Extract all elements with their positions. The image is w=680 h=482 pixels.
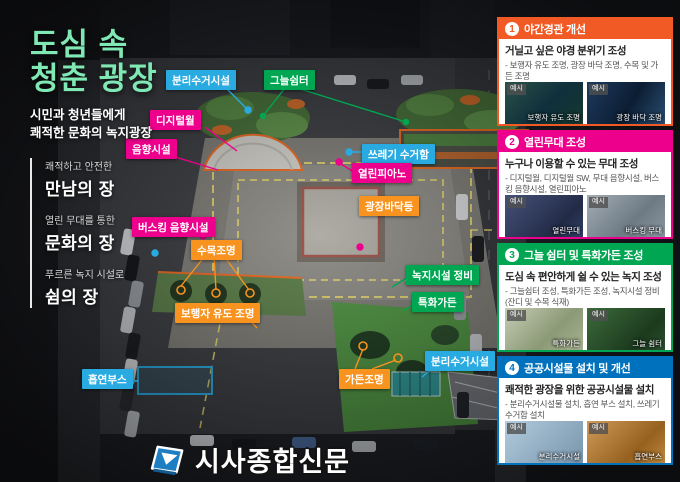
section-number-badge: 1 <box>505 22 519 36</box>
section-night-landscape: 1 야간경관 개선 거닐고 싶은 야경 분위기 조성 - 보행자 유도 조명, … <box>497 17 673 126</box>
map-label-green-maintenance: 녹지시설 정비 <box>406 265 479 285</box>
plaza-infographic: 도심 속 청춘 광장 시민과 청년들에게 쾌적한 문화의 녹지광장 쾌적하고 안… <box>0 0 680 482</box>
photo-caption: 분리수거시설 <box>539 451 580 462</box>
map-label-smoking-booth: 흡연부스 <box>82 369 133 389</box>
photo-caption: 열린무대 <box>552 225 580 236</box>
section-desc: - 그늘쉼터 조성, 특화가든 조성, 녹지시설 정비 (잔디 및 수목 식재) <box>505 286 665 308</box>
title-line-1: 도심 속 <box>30 27 128 62</box>
section-number-badge: 3 <box>505 248 519 262</box>
photo-tag: 예시 <box>507 423 526 434</box>
title-block: 도심 속 청춘 광장 시민과 청년들에게 쾌적한 문화의 녹지광장 쾌적하고 안… <box>30 28 205 308</box>
example-photo: 예시 열린무대 <box>505 195 583 238</box>
photo-caption: 흡연부스 <box>634 451 662 462</box>
example-photo: 예시 그늘 쉼터 <box>587 308 665 351</box>
section-title: 도심 속 편안하게 쉴 수 있는 녹지 조성 <box>505 269 665 284</box>
section-header: 4 공공시설물 설치 및 개선 <box>499 358 671 378</box>
photo-tag: 예시 <box>589 197 608 208</box>
section-title: 누구나 이용할 수 있는 무대 조성 <box>505 156 665 171</box>
section-desc: - 디지털월, 디지털월 SW, 무대 음향시설, 버스킹 음향시설, 열린피아… <box>505 173 665 195</box>
publisher-logo: 시사종합신문 <box>0 440 500 479</box>
value-item-meeting: 쾌적하고 안전한 만남의 장 <box>45 158 205 200</box>
photo-caption: 그늘 쉼터 <box>632 338 662 349</box>
page-subtitle: 시민과 청년들에게 쾌적한 문화의 녹지광장 <box>30 107 205 142</box>
photo-caption: 버스킹 무대 <box>625 225 662 236</box>
photo-caption: 광장 바닥 조명 <box>616 112 662 123</box>
section-number-badge: 4 <box>505 361 519 375</box>
section-open-stage: 2 열린무대 조성 누구나 이용할 수 있는 무대 조성 - 디지털월, 디지털… <box>497 130 673 239</box>
publisher-name: 시사종합신문 <box>195 440 350 479</box>
title-line-2: 청춘 광장 <box>30 61 158 96</box>
page-title: 도심 속 청춘 광장 <box>30 28 205 96</box>
example-photo: 예시 광장 바닥 조명 <box>587 82 665 125</box>
photo-tag: 예시 <box>507 84 526 95</box>
section-title: 거닐고 싶은 야경 분위기 조성 <box>505 43 665 58</box>
value-list: 쾌적하고 안전한 만남의 장 열린 무대를 통한 문화의 장 푸르른 녹지 시설… <box>30 158 205 308</box>
section-header: 1 야간경관 개선 <box>499 19 671 39</box>
section-header: 2 열린무대 조성 <box>499 132 671 152</box>
example-photo: 예시 흡연부스 <box>587 421 665 464</box>
section-header: 3 그늘 쉼터 및 특화가든 조성 <box>499 245 671 265</box>
example-photo: 예시 분리수거시설 <box>505 421 583 464</box>
map-label-open-piano: 열린피아노 <box>352 163 412 183</box>
improvement-sidebar: 1 야간경관 개선 거닐고 싶은 야경 분위기 조성 - 보행자 유도 조명, … <box>497 17 673 465</box>
map-label-special-garden: 특화가든 <box>412 292 463 312</box>
value-item-culture: 열린 무대를 통한 문화의 장 <box>45 212 205 254</box>
example-photo: 예시 버스킹 무대 <box>587 195 665 238</box>
map-label-garden-light: 가든조명 <box>339 369 390 389</box>
photo-tag: 예시 <box>589 423 608 434</box>
photo-tag: 예시 <box>589 84 608 95</box>
section-number-badge: 2 <box>505 135 519 149</box>
example-photo: 예시 보행자 유도 조명 <box>505 82 583 125</box>
example-photo: 예시 특화가든 <box>505 308 583 351</box>
section-desc: - 분리수거시설물 설치, 흡연 부스 설치, 쓰레기 수거함 설치 <box>505 399 665 421</box>
map-label-plaza-floor-light: 광장바닥등 <box>359 196 419 216</box>
map-label-shade-shelter: 그늘쉼터 <box>264 70 315 90</box>
photo-tag: 예시 <box>589 310 608 321</box>
map-label-waste-separation-right: 분리수거시설 <box>425 351 495 371</box>
section-public-facilities: 4 공공시설물 설치 및 개선 쾌적한 광장을 위한 공공시설물 설치 - 분리… <box>497 356 673 465</box>
section-shade-garden: 3 그늘 쉼터 및 특화가든 조성 도심 속 편안하게 쉴 수 있는 녹지 조성… <box>497 243 673 352</box>
section-desc: - 보행자 유도 조명, 광장 바닥 조명, 수목 및 가든 조명 <box>505 60 665 82</box>
section-title: 쾌적한 광장을 위한 공공시설물 설치 <box>505 382 665 397</box>
photo-caption: 특화가든 <box>552 338 580 349</box>
photo-tag: 예시 <box>507 310 526 321</box>
value-item-rest: 푸르른 녹지 시설로 쉼의 장 <box>45 266 205 308</box>
photo-caption: 보행자 유도 조명 <box>528 112 580 123</box>
photo-tag: 예시 <box>507 197 526 208</box>
map-label-trash-bin: 쓰레기 수거함 <box>362 144 435 164</box>
newspaper-logo-icon <box>150 443 188 477</box>
